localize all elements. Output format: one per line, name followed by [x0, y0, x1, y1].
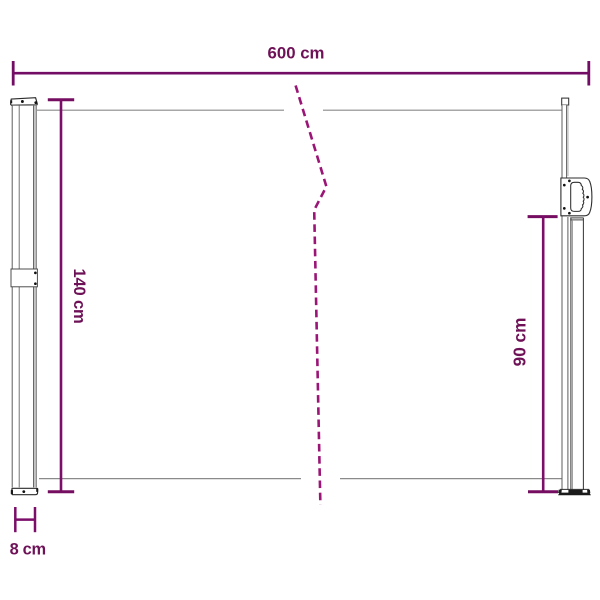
svg-text:600 cm: 600 cm [268, 44, 325, 63]
svg-text:8 cm: 8 cm [10, 540, 46, 558]
svg-text:90 cm: 90 cm [509, 318, 529, 367]
svg-text:140 cm: 140 cm [70, 268, 89, 323]
